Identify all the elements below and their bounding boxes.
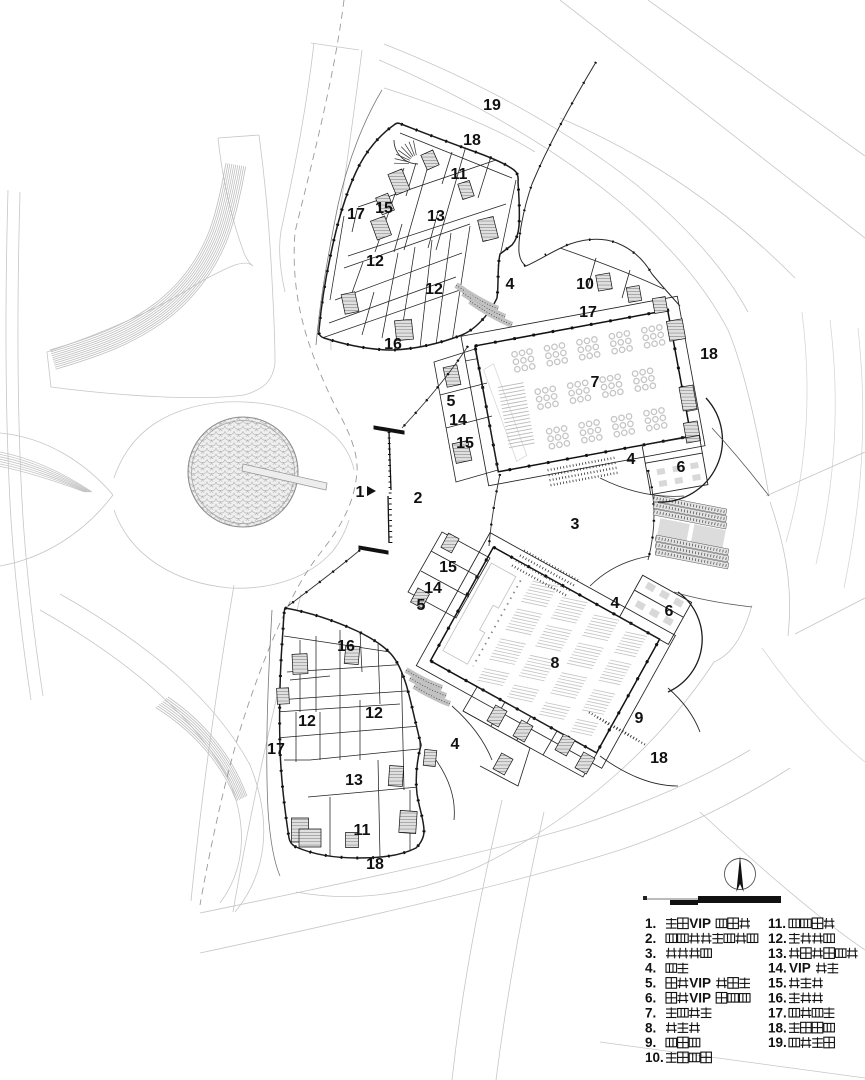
svg-text:19: 19	[483, 97, 501, 114]
svg-text:13.: 13.	[768, 946, 787, 961]
svg-text:12: 12	[365, 705, 383, 722]
svg-text:14: 14	[424, 580, 442, 597]
svg-text:12: 12	[298, 713, 316, 730]
svg-text:15.: 15.	[768, 976, 787, 991]
svg-text:12.: 12.	[768, 931, 787, 946]
svg-text:11: 11	[451, 166, 468, 183]
svg-text:VIP: VIP	[689, 976, 711, 991]
svg-text:17: 17	[267, 741, 285, 758]
svg-text:18: 18	[650, 750, 668, 767]
svg-text:9: 9	[635, 710, 644, 727]
svg-text:12: 12	[366, 253, 384, 270]
svg-text:19.: 19.	[768, 1035, 787, 1050]
svg-text:16: 16	[384, 336, 402, 353]
svg-text:5.: 5.	[645, 976, 656, 991]
svg-text:18: 18	[463, 132, 481, 149]
svg-text:6.: 6.	[645, 991, 656, 1006]
svg-text:8.: 8.	[645, 1020, 656, 1035]
svg-text:6: 6	[665, 603, 674, 620]
svg-text:2.: 2.	[645, 931, 656, 946]
svg-text:VIP: VIP	[689, 916, 711, 931]
svg-text:VIP: VIP	[689, 991, 711, 1006]
svg-text:4: 4	[611, 595, 620, 612]
svg-text:1: 1	[356, 484, 365, 501]
svg-text:7.: 7.	[645, 1005, 656, 1020]
svg-text:9.: 9.	[645, 1035, 656, 1050]
svg-text:1.: 1.	[645, 916, 656, 931]
svg-text:VIP: VIP	[789, 961, 811, 976]
svg-text:7: 7	[591, 374, 600, 391]
svg-text:18: 18	[366, 856, 384, 873]
svg-text:18: 18	[700, 346, 718, 363]
svg-text:11.: 11.	[768, 916, 786, 931]
svg-text:15: 15	[439, 559, 457, 576]
svg-text:3: 3	[571, 516, 580, 533]
svg-text:2: 2	[414, 490, 423, 507]
svg-text:6: 6	[677, 459, 686, 476]
svg-text:3.: 3.	[645, 946, 656, 961]
svg-text:14.: 14.	[768, 961, 787, 976]
svg-text:13: 13	[345, 772, 363, 789]
svg-text:4.: 4.	[645, 961, 656, 976]
svg-text:10: 10	[576, 276, 594, 293]
svg-text:5: 5	[417, 597, 426, 614]
svg-text:5: 5	[447, 393, 456, 410]
svg-text:16: 16	[337, 638, 355, 655]
svg-text:17: 17	[347, 206, 365, 223]
svg-text:11: 11	[354, 822, 371, 839]
svg-text:4: 4	[451, 736, 460, 753]
svg-text:4: 4	[506, 276, 515, 293]
svg-text:14: 14	[449, 412, 467, 429]
svg-text:17: 17	[579, 304, 597, 321]
svg-text:15: 15	[456, 435, 474, 452]
svg-text:13: 13	[427, 208, 445, 225]
svg-text:12: 12	[425, 281, 443, 298]
svg-text:15: 15	[375, 200, 393, 217]
svg-text:17.: 17.	[768, 1005, 787, 1020]
svg-text:8: 8	[551, 655, 560, 672]
svg-text:10.: 10.	[645, 1050, 664, 1065]
svg-text:16.: 16.	[768, 991, 787, 1006]
svg-text:18.: 18.	[768, 1020, 787, 1035]
svg-text:4: 4	[627, 451, 636, 468]
